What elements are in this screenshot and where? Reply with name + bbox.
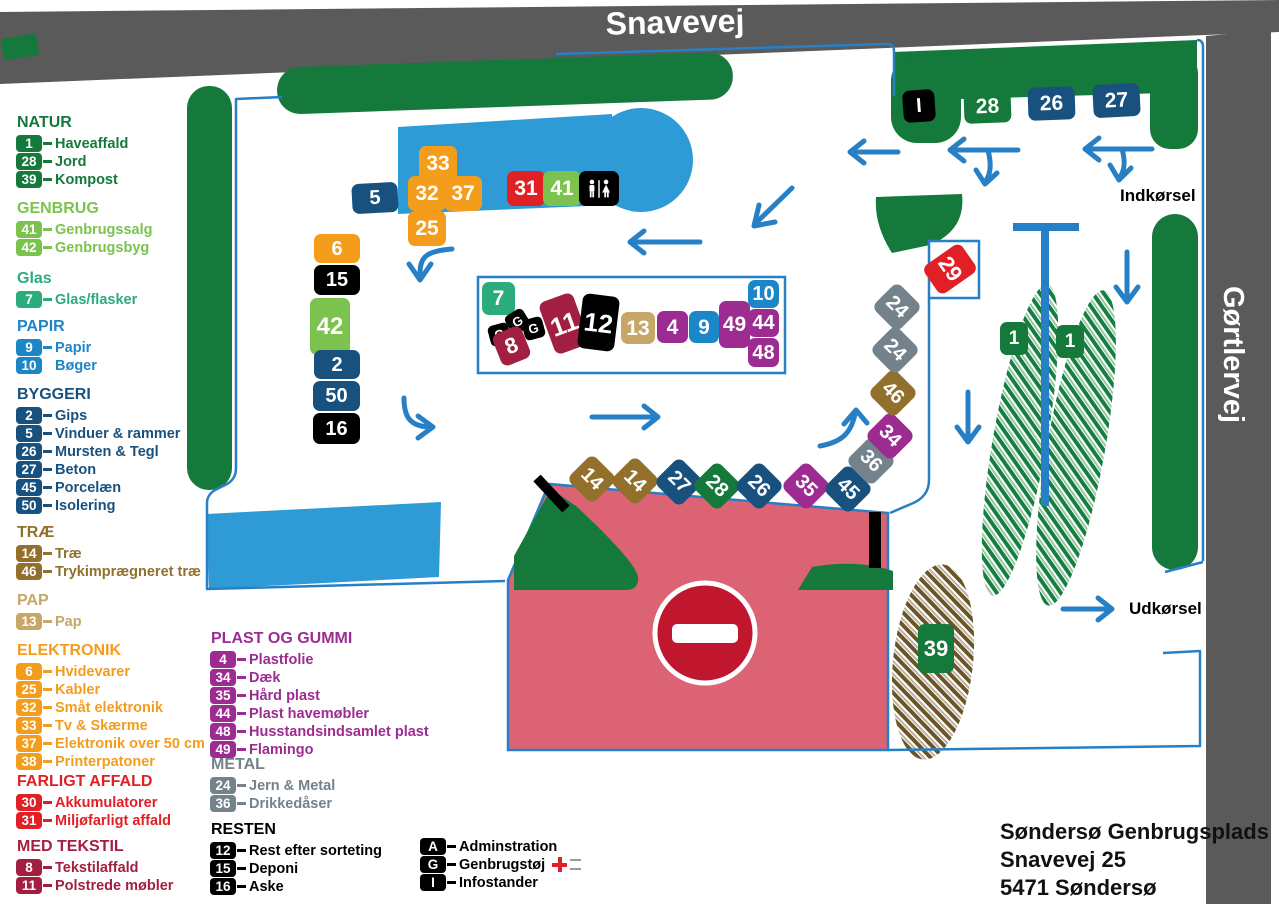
legend-item-2: 2Gips	[16, 407, 180, 424]
legend-item-label: Mursten & Tegl	[55, 444, 159, 460]
legend-badge: G	[420, 856, 446, 873]
legend-dash	[237, 730, 246, 733]
legend-badge: 24	[210, 777, 236, 794]
address-block: Søndersø Genbrugsplads Snavevej 25 5471 …	[1000, 818, 1269, 902]
legend-dash	[43, 688, 52, 691]
legend-dash	[43, 346, 52, 349]
legend-group-metal: METAL24Jern & Metal36Drikkedåser	[210, 756, 335, 813]
legend-item-9: 9Papir	[16, 339, 97, 356]
legend-group-title: Glas	[17, 270, 137, 288]
legend-item-label: Dæk	[249, 670, 280, 686]
legend-item-label: Polstrede møbler	[55, 878, 173, 894]
legend-group-title: ELEKTRONIK	[17, 642, 205, 660]
legend-item-label: Genbrugstøj	[459, 857, 545, 873]
legend-item-33: 33Tv & Skærme	[16, 717, 205, 734]
legend-badge: 16	[210, 878, 236, 895]
legend-dash	[237, 784, 246, 787]
legend-badge: 42	[16, 239, 42, 256]
legend-dash	[237, 694, 246, 697]
legend-group-byggeri: BYGGERI2Gips5Vinduer & rammer26Mursten &…	[16, 386, 180, 515]
legend-item-39: 39Kompost	[16, 171, 128, 188]
legend-item-42: 42Genbrugsbyg	[16, 239, 153, 256]
legend-item-50: 50Isolering	[16, 497, 180, 514]
legend-dash	[43, 884, 52, 887]
legend-dash	[447, 863, 456, 866]
legend-item-label: Pap	[55, 614, 82, 630]
legend-item-label: Infostander	[459, 875, 538, 891]
legend-dash	[237, 712, 246, 715]
legend-group-title: PAPIR	[17, 318, 97, 336]
legend-group-title: TRÆ	[17, 524, 201, 542]
legend-item-A: AAdminstration	[420, 838, 581, 855]
legend-badge: 9	[16, 339, 42, 356]
legend-item-37: 37Elektronik over 50 cm	[16, 735, 205, 752]
legend-item-label: Rest efter sorteting	[249, 843, 382, 859]
legend-dash	[43, 298, 52, 301]
legend-item-label: Papir	[55, 340, 91, 356]
legend-group-genbrug: GENBRUG41Genbrugssalg42Genbrugsbyg	[16, 200, 153, 257]
legend-item-label: Bøger	[55, 358, 97, 374]
legend-item-label: Kompost	[55, 172, 118, 188]
legend-dash	[43, 760, 52, 763]
legend-item-label: Jord	[55, 154, 86, 170]
legend-badge: 15	[210, 860, 236, 877]
legend-group-title: NATUR	[17, 114, 128, 132]
legend-badge: 25	[16, 681, 42, 698]
address-line: 5471 Søndersø	[1000, 874, 1269, 902]
legend-dash	[43, 620, 52, 623]
legend-dash	[43, 819, 52, 822]
legend-group-natur: NATUR1Haveaffald28Jord39Kompost	[16, 114, 128, 189]
legend-dash	[43, 142, 52, 145]
legend-group-title: BYGGERI	[17, 386, 180, 404]
legend-item-27: 27Beton	[16, 461, 180, 478]
legend-item-label: Genbrugsbyg	[55, 240, 149, 256]
legend-badge: 41	[16, 221, 42, 238]
legend-item-35: 35Hård plast	[210, 687, 429, 704]
legend-item-48: 48Husstandsindsamlet plast	[210, 723, 429, 740]
legend-badge: 4	[210, 651, 236, 668]
legend-group-farligt-affald: FARLIGT AFFALD30Akkumulatorer31Miljøfarl…	[16, 773, 171, 830]
legend-item-12: 12Rest efter sorteting	[210, 842, 382, 859]
address-line: Snavevej 25	[1000, 846, 1269, 874]
legend-badge: 10	[16, 357, 42, 374]
red-cross-icon	[552, 857, 567, 872]
legend-badge: 36	[210, 795, 236, 812]
legend-dash	[43, 742, 52, 745]
legend-group-title: FARLIGT AFFALD	[17, 773, 171, 791]
legend-badge: 26	[16, 443, 42, 460]
legend-item-label: Beton	[55, 462, 96, 478]
legend-dash	[43, 570, 52, 573]
road-label-gortlervej: Gørtlervej	[1216, 286, 1249, 486]
legend-item-label: Tv & Skærme	[55, 718, 148, 734]
legend-item-38: 38Printerpatoner	[16, 753, 205, 770]
legend-group-title: PAP	[17, 592, 82, 610]
legend-item-label: Plastfolie	[249, 652, 313, 668]
legend-item-14: 14Træ	[16, 545, 201, 562]
legend-item-46: 46Trykimprægneret træ	[16, 563, 201, 580]
legend-item-label: Deponi	[249, 861, 298, 877]
legend-dash	[237, 802, 246, 805]
legend-badge: 1	[16, 135, 42, 152]
legend-item-15: 15Deponi	[210, 860, 382, 877]
legend-badge: 33	[16, 717, 42, 734]
legend-dash	[237, 658, 246, 661]
legend-dash	[43, 450, 52, 453]
legend-badge: 7	[16, 291, 42, 308]
legend-item-34: 34Dæk	[210, 669, 429, 686]
legend-item-label: Tekstilaffald	[55, 860, 139, 876]
legend-item-5: 5Vinduer & rammer	[16, 425, 180, 442]
legend-item-32: 32Småt elektronik	[16, 699, 205, 716]
legend-item-4: 4Plastfolie	[210, 651, 429, 668]
legend-badge: 30	[16, 794, 42, 811]
legend-item-28: 28Jord	[16, 153, 128, 170]
legend-badge: 28	[16, 153, 42, 170]
legend-group-title: RESTEN	[211, 821, 382, 839]
legend-dash	[237, 849, 246, 852]
legend-badge: 50	[16, 497, 42, 514]
legend-item-label: Kabler	[55, 682, 100, 698]
legend-item-31: 31Miljøfarligt affald	[16, 812, 171, 829]
legend-item-label: Akkumulatorer	[55, 795, 157, 811]
legend-item-label: Træ	[55, 546, 82, 562]
legend-item-label: Aske	[249, 879, 284, 895]
legend-dash	[43, 801, 52, 804]
legend-badge: 34	[210, 669, 236, 686]
legend-group-tr-: TRÆ14Træ46Trykimprægneret træ	[16, 524, 201, 581]
legend-badge: 8	[16, 859, 42, 876]
legend-item-10: 10Bøger	[16, 357, 97, 374]
legend-dash	[237, 867, 246, 870]
legend-item-label: Hvidevarer	[55, 664, 130, 680]
road-label-snavevej: Snavevej	[540, 1, 811, 44]
exit-label: Udkørsel	[1129, 599, 1202, 619]
legend-dash	[43, 160, 52, 163]
legend-dash	[43, 414, 52, 417]
legend-item-13: 13Pap	[16, 613, 82, 630]
legend-dash	[237, 676, 246, 679]
legend-item-I: IInfostander	[420, 874, 581, 891]
legend-item-label: Porcelæn	[55, 480, 121, 496]
legend-badge: I	[420, 874, 446, 891]
legend-dash	[43, 432, 52, 435]
legend-group-plast-og-gummi: PLAST OG GUMMI4Plastfolie34Dæk35Hård pla…	[210, 630, 429, 759]
legend-dash	[43, 552, 52, 555]
legend-dash	[237, 885, 246, 888]
legend-item-8: 8Tekstilaffald	[16, 859, 173, 876]
legend-item-label: Jern & Metal	[249, 778, 335, 794]
legend-item-30: 30Akkumulatorer	[16, 794, 171, 811]
legend-item-label: Genbrugssalg	[55, 222, 153, 238]
legend-item-6: 6Hvidevarer	[16, 663, 205, 680]
legend-dash	[43, 670, 52, 673]
legend-group-med-tekstil: MED TEKSTIL8Tekstilaffald11Polstrede møb…	[16, 838, 173, 895]
legend-dash	[43, 468, 52, 471]
legend-badge: 11	[16, 877, 42, 894]
legend-badge: 31	[16, 812, 42, 829]
entrance-label: Indkørsel	[1120, 186, 1196, 206]
legend-item-label: Adminstration	[459, 839, 557, 855]
legend-group-papir: PAPIR9Papir10Bøger	[16, 318, 97, 375]
legend-badge: 12	[210, 842, 236, 859]
legend-item-11: 11Polstrede møbler	[16, 877, 173, 894]
legend-badge: 48	[210, 723, 236, 740]
legend-item-label: Drikkedåser	[249, 796, 332, 812]
legend-dash	[43, 706, 52, 709]
legend-item-label: Småt elektronik	[55, 700, 163, 716]
legend-group-elektronik: ELEKTRONIK6Hvidevarer25Kabler32Småt elek…	[16, 642, 205, 771]
legend-item-24: 24Jern & Metal	[210, 777, 335, 794]
legend-item-label: Elektronik over 50 cm	[55, 736, 205, 752]
legend-dash	[447, 845, 456, 848]
legend-item-label: Plast havemøbler	[249, 706, 369, 722]
legend-item-44: 44Plast havemøbler	[210, 705, 429, 722]
legend-group-facilities: AAdminstrationGGenbrugstøjIInfostander	[420, 838, 581, 892]
legend-badge: 45	[16, 479, 42, 496]
legend-badge: 14	[16, 545, 42, 562]
legend-item-label: Trykimprægneret træ	[55, 564, 201, 580]
legend-group-title: METAL	[211, 756, 335, 774]
legend-group-title: MED TEKSTIL	[17, 838, 173, 856]
legend: NATUR1Haveaffald28Jord39KompostGENBRUG41…	[0, 0, 1279, 904]
legend-badge: 37	[16, 735, 42, 752]
legend-item-7: 7Glas/flasker	[16, 291, 137, 308]
legend-badge: 46	[16, 563, 42, 580]
legend-item-16: 16Aske	[210, 878, 382, 895]
legend-dash	[43, 866, 52, 869]
legend-item-label: Hård plast	[249, 688, 320, 704]
legend-badge: A	[420, 838, 446, 855]
legend-badge: 38	[16, 753, 42, 770]
legend-group-title: GENBRUG	[17, 200, 153, 218]
legend-item-45: 45Porcelæn	[16, 479, 180, 496]
legend-group-resten: RESTEN12Rest efter sorteting15Deponi16As…	[210, 821, 382, 896]
legend-group-pap: PAP13Pap	[16, 592, 82, 631]
legend-item-26: 26Mursten & Tegl	[16, 443, 180, 460]
legend-group-title: PLAST OG GUMMI	[211, 630, 429, 648]
legend-item-label: Haveaffald	[55, 136, 128, 152]
legend-item-label: Miljøfarligt affald	[55, 813, 171, 829]
legend-item-1: 1Haveaffald	[16, 135, 128, 152]
legend-item-36: 36Drikkedåser	[210, 795, 335, 812]
legend-dash	[43, 246, 52, 249]
legend-item-41: 41Genbrugssalg	[16, 221, 153, 238]
legend-item-G: GGenbrugstøj	[420, 856, 581, 873]
legend-dash	[43, 178, 52, 181]
legend-item-label: Isolering	[55, 498, 115, 514]
legend-item-label: Printerpatoner	[55, 754, 155, 770]
legend-dash	[43, 504, 52, 507]
legend-badge: 44	[210, 705, 236, 722]
legend-badge: 32	[16, 699, 42, 716]
legend-dash	[43, 724, 52, 727]
legend-badge: 2	[16, 407, 42, 424]
legend-badge: 35	[210, 687, 236, 704]
legend-badge: 39	[16, 171, 42, 188]
recycling-site-map: I282627533323725314161542250167GGG811121…	[0, 0, 1279, 904]
red-cross-caption	[570, 859, 581, 870]
legend-badge: 5	[16, 425, 42, 442]
legend-dash	[447, 881, 456, 884]
legend-dash	[43, 228, 52, 231]
legend-item-label: Gips	[55, 408, 87, 424]
legend-badge: 27	[16, 461, 42, 478]
address-line: Søndersø Genbrugsplads	[1000, 818, 1269, 846]
legend-badge: 13	[16, 613, 42, 630]
legend-item-label: Husstandsindsamlet plast	[249, 724, 429, 740]
legend-group-glas: Glas7Glas/flasker	[16, 270, 137, 309]
legend-dash	[237, 748, 246, 751]
legend-item-label: Glas/flasker	[55, 292, 137, 308]
legend-item-25: 25Kabler	[16, 681, 205, 698]
legend-item-label: Vinduer & rammer	[55, 426, 180, 442]
legend-dash	[43, 486, 52, 489]
legend-badge: 6	[16, 663, 42, 680]
